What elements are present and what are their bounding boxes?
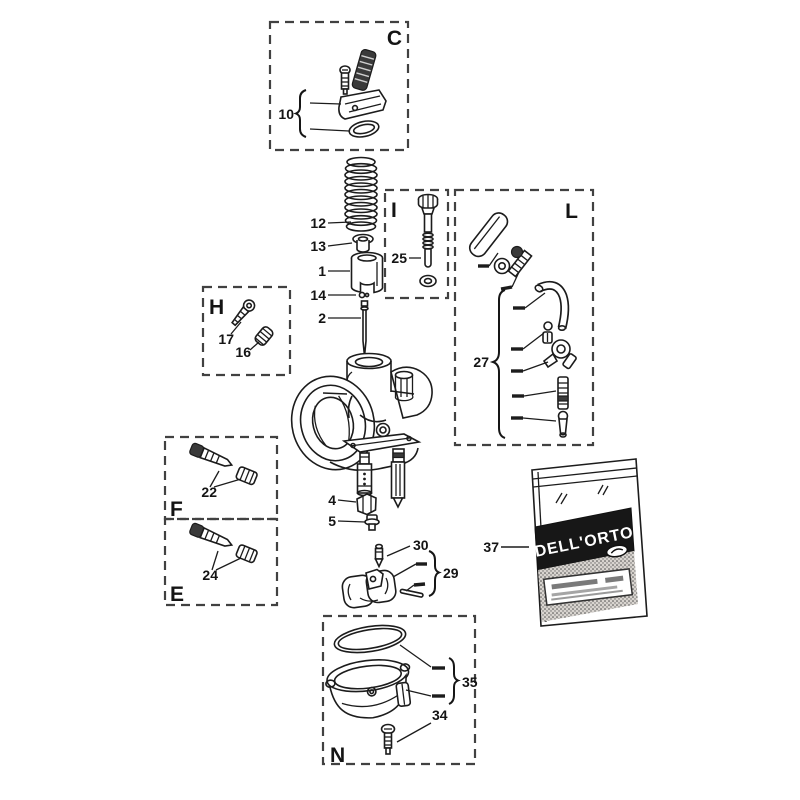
pilot-jet	[365, 515, 379, 530]
starter-plunger-tube	[467, 210, 511, 274]
banjo-fitting	[544, 340, 577, 369]
carburetor-body	[282, 354, 432, 479]
jet-holder	[357, 494, 376, 515]
section-l-border	[455, 190, 593, 445]
leader-34	[397, 723, 431, 742]
jet-set-24	[189, 522, 258, 563]
callout-16: 16	[235, 344, 251, 360]
float-pin	[400, 589, 423, 597]
idle-screw	[229, 298, 256, 328]
section-e-letter: E	[170, 583, 184, 606]
float-needle	[376, 545, 383, 567]
callout-10-brace	[296, 90, 306, 137]
nozzle	[559, 412, 568, 438]
needle-clip	[359, 292, 368, 297]
float-assembly	[341, 569, 397, 609]
leader-nozzle	[523, 418, 556, 421]
section-i: I 25	[385, 190, 448, 298]
section-l-letter: L	[565, 200, 578, 223]
leader-jetscrew-dash	[501, 287, 512, 289]
section-c-letter: C	[387, 27, 402, 50]
leader-pipe	[525, 293, 545, 308]
leader-29a	[393, 564, 416, 577]
section-i-letter: I	[391, 199, 397, 222]
callout-10: 10	[278, 106, 294, 122]
section-e: E 24	[165, 519, 277, 606]
leader-30	[387, 546, 410, 556]
section-h: H 17 16	[203, 287, 290, 375]
leader-22b	[214, 479, 241, 487]
choke-plunger	[351, 49, 376, 92]
callout-25: 25	[391, 250, 407, 266]
leader-5	[338, 521, 365, 522]
section-n-letter: N	[330, 744, 345, 767]
section-c: C	[270, 22, 408, 150]
float-bowl	[324, 656, 415, 723]
section-h-letter: H	[209, 296, 224, 319]
callout-13: 13	[310, 238, 326, 254]
callout-37: 37	[483, 539, 499, 555]
float-group: 30 29	[341, 537, 459, 609]
mixture-screw	[419, 195, 438, 268]
parts-diagram-page: C	[0, 0, 800, 800]
leader-16	[250, 342, 259, 350]
bowl-gasket	[332, 621, 407, 657]
leader-banjo	[523, 362, 548, 371]
leader-4	[338, 500, 356, 502]
section-n: N 35	[323, 616, 478, 767]
leader-24b	[216, 558, 241, 570]
callout-34: 34	[432, 707, 448, 723]
callout-14: 14	[310, 287, 326, 303]
screw-nut	[420, 276, 436, 287]
drain-screw	[382, 725, 395, 755]
spring-seat	[353, 235, 373, 253]
section-f-letter: F	[170, 498, 183, 521]
leader-ribjet	[524, 391, 556, 396]
section-f: F 22	[165, 437, 277, 521]
leader-clamp	[523, 333, 544, 349]
callout-29-brace	[429, 551, 439, 596]
choke-gasket-ring	[348, 119, 380, 140]
leader-13	[328, 243, 352, 246]
callout-5: 5	[328, 513, 336, 529]
leader-29b	[406, 585, 414, 591]
callout-29: 29	[443, 565, 459, 581]
section-l: L	[455, 190, 593, 445]
jet-needle	[361, 301, 368, 356]
callout-27: 27	[473, 354, 489, 370]
callout-12: 12	[310, 215, 326, 231]
throttle-slide	[352, 253, 383, 293]
leader-10b	[310, 129, 349, 131]
choke-bolt	[340, 66, 350, 94]
leader-10a	[310, 103, 341, 104]
needle-jet-tube	[392, 449, 405, 507]
callout-35: 35	[462, 674, 478, 690]
callout-1: 1	[318, 263, 326, 279]
jet-set-22	[189, 442, 258, 485]
slide-stack: 12 13 1 14 2	[310, 158, 382, 357]
diagram-canvas: C	[0, 0, 800, 800]
gasket-kit-package: DELL'ORTO 37	[483, 459, 647, 626]
throttle-spring	[345, 158, 377, 232]
emulsion-tube	[358, 453, 372, 496]
cable-clamp	[543, 322, 552, 343]
callout-30: 30	[413, 537, 429, 553]
ribbed-jet	[558, 377, 568, 409]
callout-4: 4	[328, 492, 336, 508]
starter-jet-screw	[508, 247, 531, 277]
leader-29b-dash	[414, 584, 425, 585]
callout-35-brace	[449, 658, 458, 704]
callout-27-brace	[493, 290, 505, 438]
callout-2: 2	[318, 310, 326, 326]
